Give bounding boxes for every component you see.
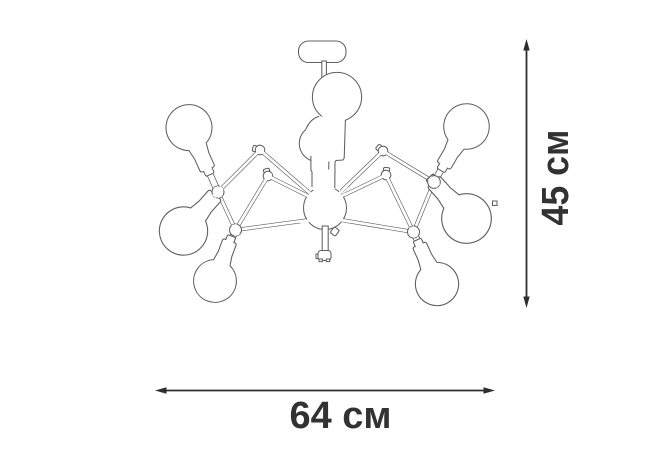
svg-text:45 см: 45 см — [534, 130, 576, 226]
svg-text:64 см: 64 см — [289, 395, 391, 437]
